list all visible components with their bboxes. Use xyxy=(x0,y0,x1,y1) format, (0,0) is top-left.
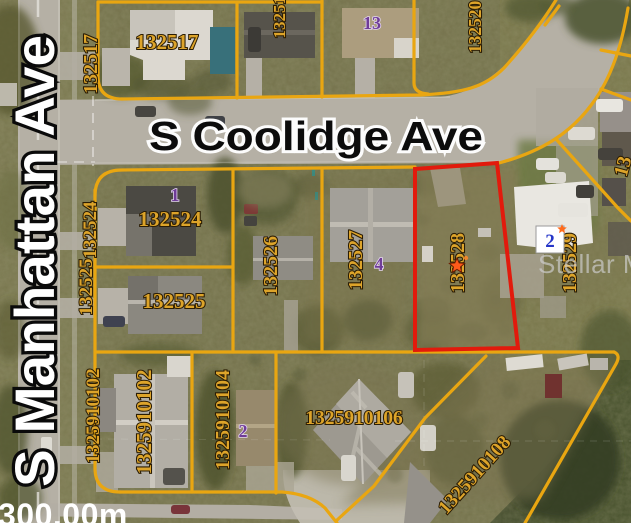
svg-text:1325910102: 1325910102 xyxy=(132,370,156,475)
svg-text:Stellar MLS: Stellar MLS xyxy=(538,249,631,279)
svg-text:132526: 132526 xyxy=(260,236,282,296)
svg-text:132520: 132520 xyxy=(465,1,485,54)
svg-text:300.00m: 300.00m xyxy=(0,497,128,523)
svg-text:4: 4 xyxy=(375,254,384,274)
svg-text:2: 2 xyxy=(239,421,248,441)
svg-text:S Coolidge Ave: S Coolidge Ave xyxy=(149,113,483,159)
svg-text:132517: 132517 xyxy=(136,30,199,54)
svg-text:S Manhattan Ave: S Manhattan Ave xyxy=(3,35,66,487)
svg-text:132517: 132517 xyxy=(80,34,102,94)
svg-text:1325910104: 1325910104 xyxy=(212,370,234,470)
svg-text:132524: 132524 xyxy=(80,201,101,259)
svg-text:132524: 132524 xyxy=(139,207,203,231)
svg-text:13: 13 xyxy=(363,13,381,33)
svg-text:1: 1 xyxy=(171,185,180,205)
svg-text:132527: 132527 xyxy=(345,230,367,290)
svg-text:132525: 132525 xyxy=(143,289,206,313)
svg-text:132519: 132519 xyxy=(270,0,289,39)
svg-text:132525: 132525 xyxy=(76,259,97,316)
svg-text:1325910106: 1325910106 xyxy=(305,408,403,429)
svg-text:1325910102: 1325910102 xyxy=(83,369,104,464)
